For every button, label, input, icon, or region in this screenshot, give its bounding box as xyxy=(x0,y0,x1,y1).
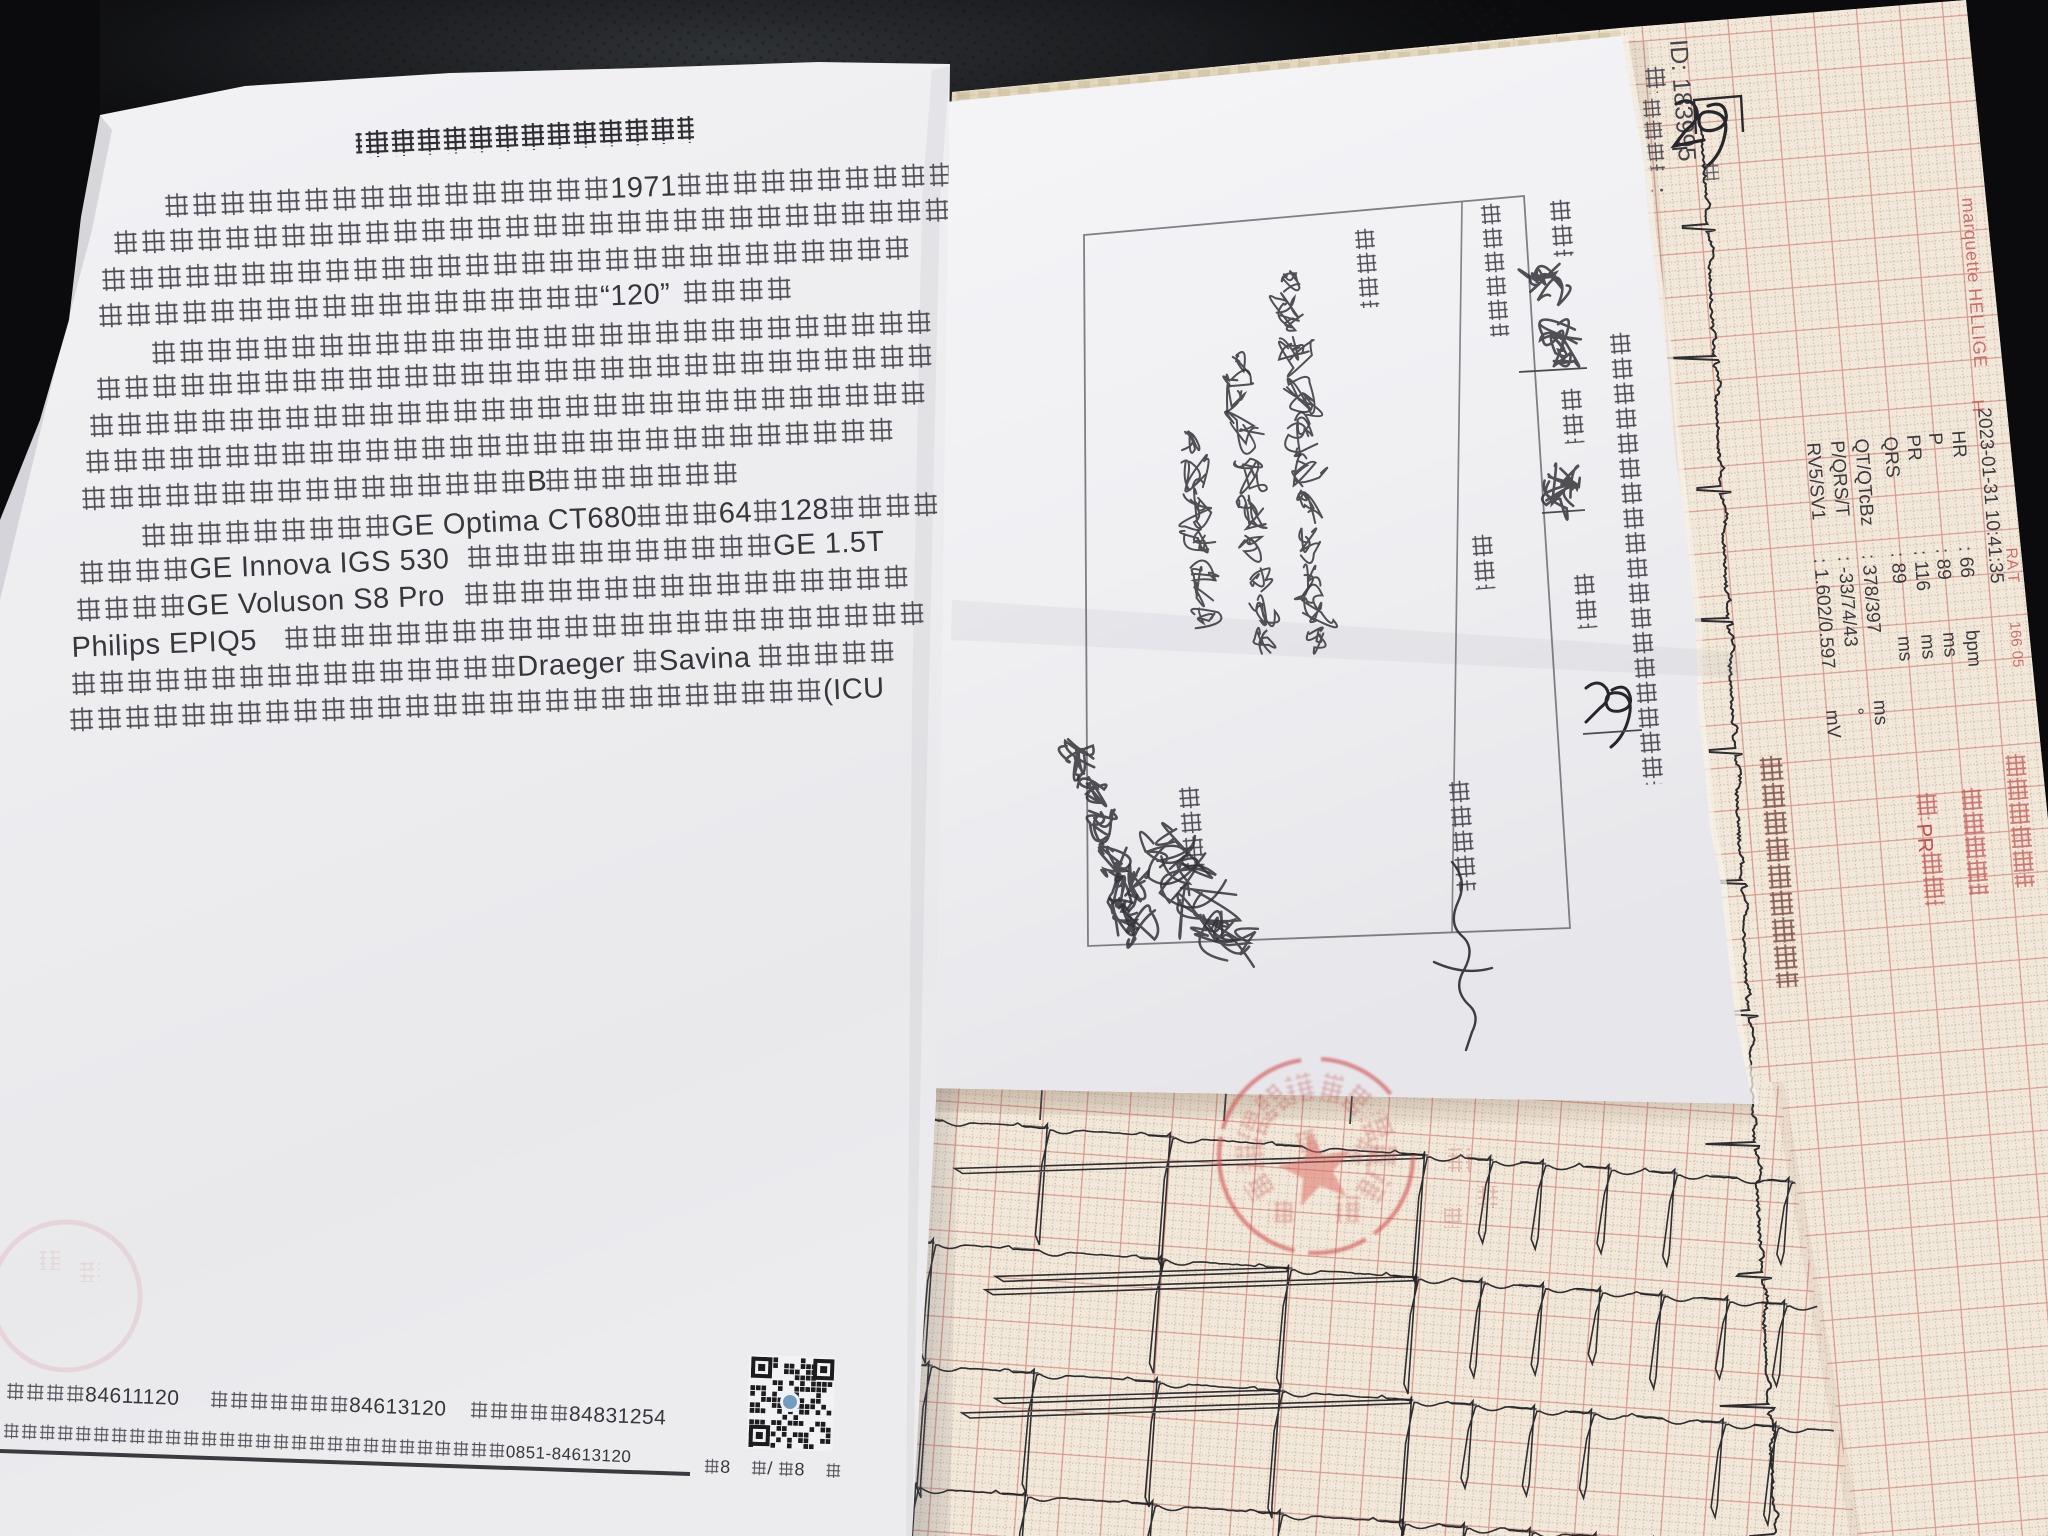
svg-text:8: 8 xyxy=(720,1457,731,1477)
svg-text:ms: ms xyxy=(1938,631,1961,658)
svg-text:: 66: : 66 xyxy=(1954,546,1977,579)
svg-text:H: H xyxy=(1968,399,1988,413)
svg-text:84831254: 84831254 xyxy=(569,1403,667,1430)
svg-text:PR: PR xyxy=(1902,434,1925,462)
svg-text:bpm: bpm xyxy=(1961,629,1985,667)
svg-text:64: 64 xyxy=(718,496,753,529)
svg-text:HR: HR xyxy=(1947,430,1970,459)
svg-text:RA T: RA T xyxy=(2002,547,2022,584)
svg-text:8: 8 xyxy=(794,1459,805,1479)
svg-text:QRS: QRS xyxy=(1879,436,1903,479)
svg-text:Draeger: Draeger xyxy=(517,647,626,683)
svg-text:“120”: “120” xyxy=(600,278,671,313)
svg-text:: 89: : 89 xyxy=(1886,552,1909,585)
svg-text:128: 128 xyxy=(779,493,830,527)
svg-text:Savina: Savina xyxy=(658,642,751,678)
svg-text:166 05: 166 05 xyxy=(2006,621,2026,668)
svg-text:ms: ms xyxy=(1893,635,1916,662)
svg-text:84613120: 84613120 xyxy=(349,1394,447,1421)
svg-text:ms: ms xyxy=(1869,699,1892,726)
svg-text:PR: PR xyxy=(1912,823,1937,854)
svg-text:1971: 1971 xyxy=(610,170,678,205)
svg-text:mV: mV xyxy=(1821,709,1844,739)
svg-text:: 89: : 89 xyxy=(1931,548,1954,581)
svg-text:ms: ms xyxy=(1916,633,1939,660)
svg-text:GE 1.5T: GE 1.5T xyxy=(773,526,886,562)
svg-text:°: ° xyxy=(1845,707,1867,716)
svg-text:(ICU: (ICU xyxy=(822,672,885,706)
svg-text:: 116: : 116 xyxy=(1909,550,1933,592)
svg-text:/: / xyxy=(767,1458,773,1478)
svg-text:84611120: 84611120 xyxy=(85,1383,180,1410)
svg-text:P: P xyxy=(1924,432,1946,446)
